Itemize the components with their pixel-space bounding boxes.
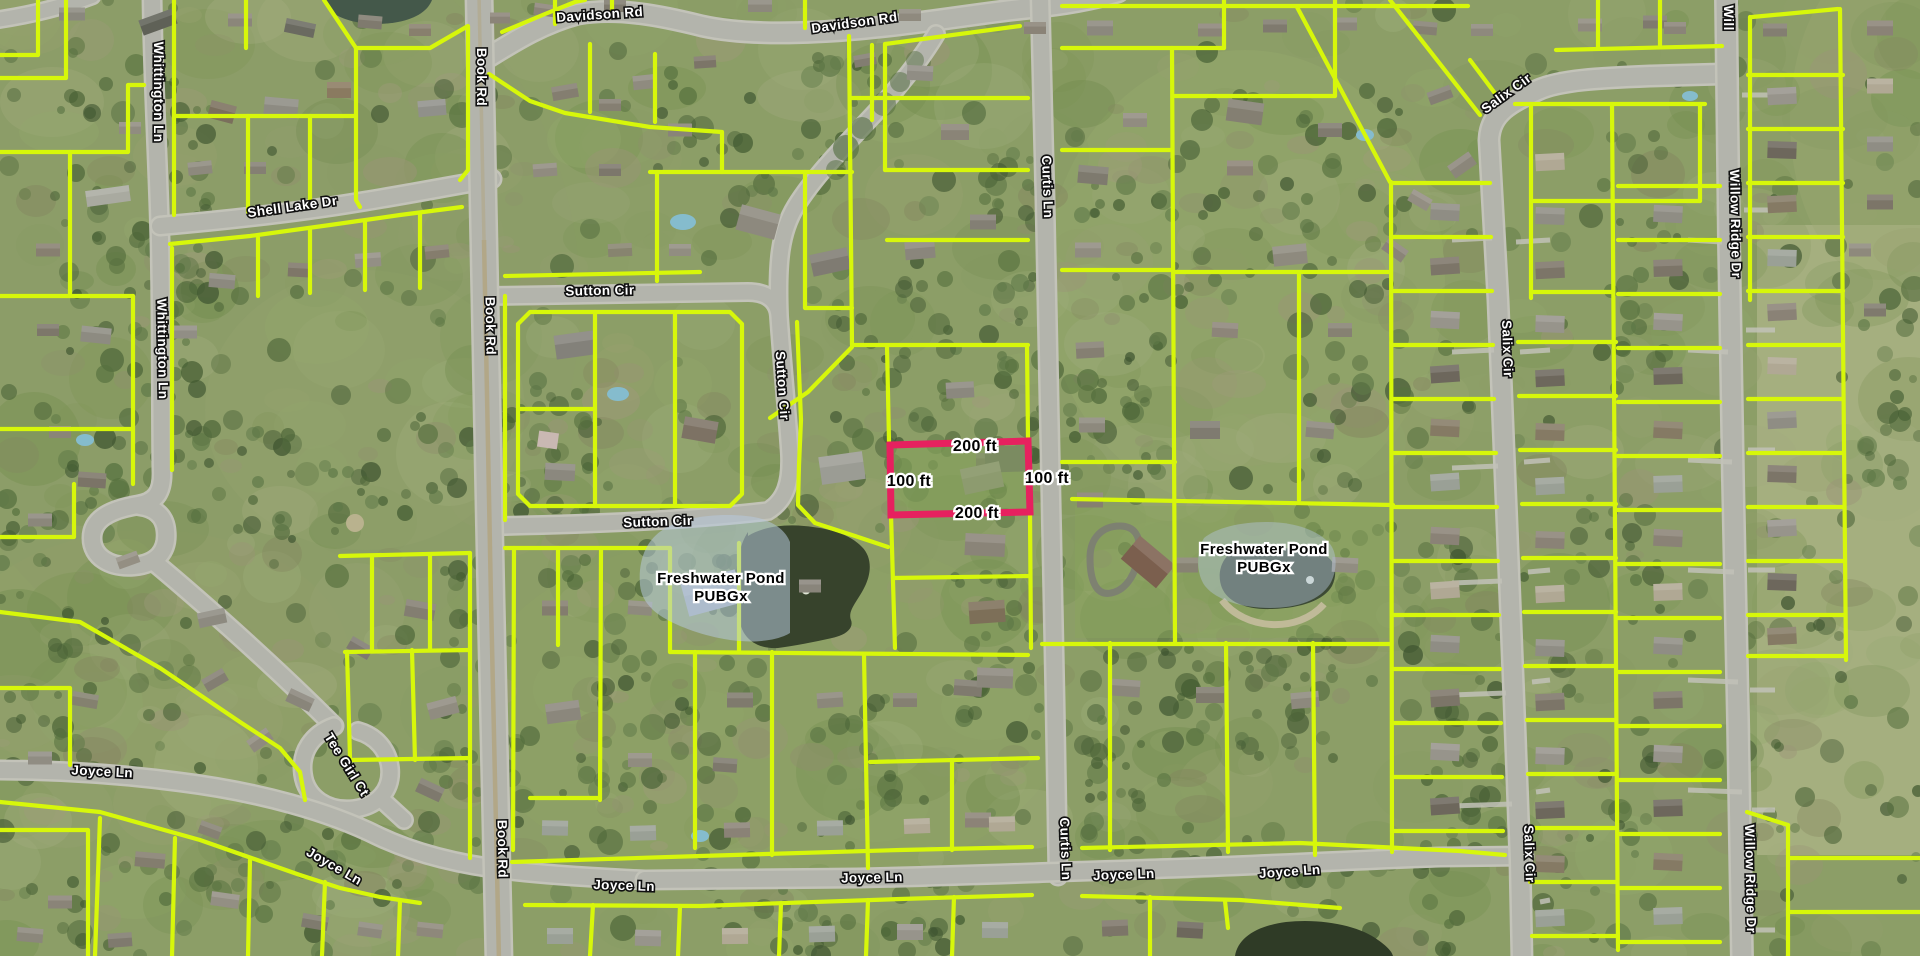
svg-text:Will: Will bbox=[1721, 5, 1736, 30]
svg-text:Freshwater Pond: Freshwater Pond bbox=[657, 570, 785, 587]
svg-text:Curtis Ln: Curtis Ln bbox=[1039, 155, 1056, 218]
svg-text:200 ft: 200 ft bbox=[953, 438, 997, 455]
svg-text:100 ft: 100 ft bbox=[887, 473, 931, 490]
svg-text:Sutton Cir: Sutton Cir bbox=[565, 282, 635, 298]
svg-text:Joyce Ln: Joyce Ln bbox=[593, 877, 655, 894]
svg-text:Willow Ridge Dr: Willow Ridge Dr bbox=[1742, 824, 1759, 933]
svg-text:Whittington Ln: Whittington Ln bbox=[154, 298, 171, 399]
svg-text:Book Rd: Book Rd bbox=[474, 48, 489, 106]
svg-text:Whittington Ln: Whittington Ln bbox=[151, 42, 166, 143]
svg-text:100 ft: 100 ft bbox=[1025, 470, 1069, 487]
svg-text:PUBGx: PUBGx bbox=[694, 588, 748, 605]
svg-text:Sutton Cir: Sutton Cir bbox=[623, 513, 693, 530]
svg-text:Joyce Ln: Joyce Ln bbox=[1093, 866, 1155, 883]
svg-text:Salix Cir: Salix Cir bbox=[1521, 825, 1538, 883]
svg-text:Book Rd: Book Rd bbox=[494, 820, 510, 879]
svg-text:Curtis Ln: Curtis Ln bbox=[1057, 817, 1074, 880]
svg-text:Joyce Ln: Joyce Ln bbox=[841, 869, 903, 885]
svg-text:Salix Cir: Salix Cir bbox=[1499, 320, 1516, 378]
svg-text:PUBGx: PUBGx bbox=[1237, 559, 1291, 576]
svg-text:Willow Ridge Dr: Willow Ridge Dr bbox=[1727, 169, 1744, 278]
svg-text:Freshwater Pond: Freshwater Pond bbox=[1200, 541, 1328, 558]
svg-text:Book Rd: Book Rd bbox=[482, 297, 498, 356]
svg-text:200 ft: 200 ft bbox=[955, 505, 999, 522]
